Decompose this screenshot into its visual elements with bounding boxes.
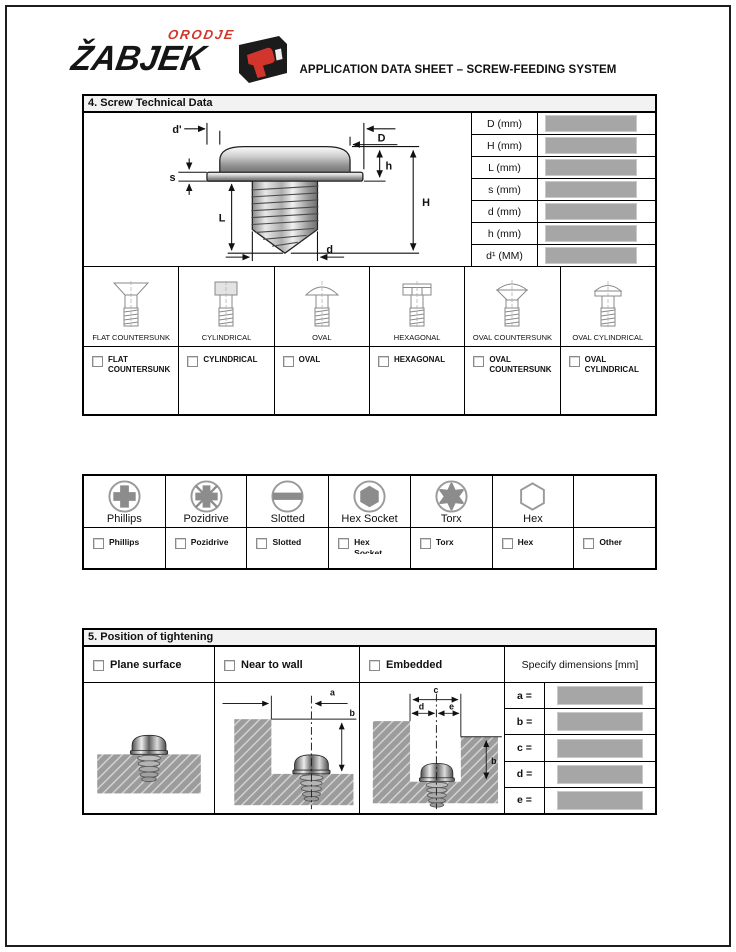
hexagonal-icon — [395, 278, 439, 330]
flat-countersunk-icon — [109, 278, 153, 330]
checkbox-hexagonal[interactable] — [378, 356, 389, 367]
checkbox-cell-hex-socket[interactable]: Hex Socket — [329, 528, 411, 568]
phillips-icon — [107, 479, 142, 514]
input-D-mm[interactable] — [545, 115, 637, 132]
checkbox-label: CYLINDRICAL — [203, 355, 257, 365]
head-type-label: OVAL CYLINDRICAL — [572, 333, 643, 342]
checkbox-cell-hexagonal[interactable]: HEXAGONAL — [370, 347, 465, 414]
dim-label-d-mm: d (mm) — [472, 201, 538, 222]
checkbox-cell-flat-countersunk[interactable]: FLAT COUNTERSUNK — [84, 347, 179, 414]
table-row: h (mm) — [472, 223, 655, 245]
checkbox-label: OVAL CYLINDRICAL — [585, 355, 651, 376]
hex-icon — [515, 479, 550, 514]
head-type-label: OVAL — [312, 333, 331, 342]
checkbox-cell-other[interactable]: Other — [574, 528, 655, 568]
dim-label-D-mm: D (mm) — [472, 113, 538, 134]
checkbox-hex-socket[interactable] — [338, 538, 349, 549]
dim-label-a: a — [330, 688, 335, 698]
head-type-hexagonal: HEXAGONAL — [370, 267, 465, 346]
drive-phillips: Phillips — [84, 476, 166, 527]
hex-socket-icon — [352, 479, 387, 514]
pozidrive-icon — [189, 479, 224, 514]
table-row: b = — [505, 709, 655, 735]
drive-hex-socket: Hex Socket — [329, 476, 411, 527]
drive-checkbox-row: Phillips Pozidrive Slotted Hex Socket To… — [84, 528, 655, 568]
logo-badge — [235, 33, 289, 87]
section-position-of-tightening: 5. Position of tightening Plane surface … — [82, 628, 657, 815]
checkbox-plane-surface[interactable] — [93, 660, 104, 671]
dim-label-e: e — [449, 701, 454, 711]
checkbox-cell-cylindrical[interactable]: CYLINDRICAL — [179, 347, 274, 414]
input-d-mm[interactable] — [545, 203, 637, 220]
dim-label-d: d — [326, 244, 333, 256]
head-type-label: HEXAGONAL — [394, 333, 441, 342]
input-d[interactable] — [557, 765, 643, 784]
checkbox-label: Phillips — [109, 537, 139, 548]
dim-b-label: b = — [505, 709, 545, 734]
checkbox-cell-slotted[interactable]: Slotted — [247, 528, 329, 568]
drive-label: Hex — [523, 514, 543, 525]
screw-dimension-diagram: d' D h s L H d — [84, 113, 472, 266]
drive-label: Phillips — [107, 514, 142, 525]
checkbox-pozidrive[interactable] — [175, 538, 186, 549]
checkbox-label: OVAL — [299, 355, 321, 365]
table-row: e = — [505, 788, 655, 813]
head-type-checkbox-row: FLAT COUNTERSUNK CYLINDRICAL OVAL HEXAGO… — [84, 347, 655, 414]
input-h-mm[interactable] — [545, 225, 637, 242]
embedded-diagram: c d e b — [360, 683, 505, 813]
drive-label: Pozidrive — [183, 514, 228, 525]
checkbox-slotted[interactable] — [256, 538, 267, 549]
dim-a-label: a = — [505, 683, 545, 708]
head-type-icons-row: FLAT COUNTERSUNK CYLINDRICAL — [84, 267, 655, 347]
dim-label-c: c — [433, 685, 438, 695]
drive-label: Slotted — [271, 514, 305, 525]
checkbox-cell-phillips[interactable]: Phillips — [84, 528, 166, 568]
option-plane-surface[interactable]: Plane surface — [84, 647, 215, 682]
checkbox-flat-countersunk[interactable] — [92, 356, 103, 367]
checkbox-label: Torx — [436, 537, 454, 548]
checkbox-cell-oval-countersunk[interactable]: OVAL COUNTERSUNK — [465, 347, 560, 414]
dim-label-h-mm: h (mm) — [472, 223, 538, 244]
dim-label-b: b — [349, 708, 354, 718]
checkbox-label: Other — [599, 537, 622, 548]
head-type-oval-countersunk: OVAL COUNTERSUNK — [465, 267, 560, 346]
input-L-mm[interactable] — [545, 159, 637, 176]
checkbox-label: Hex — [518, 537, 534, 548]
dim-label-s-mm: s (mm) — [472, 179, 538, 200]
checkbox-label: Hex Socket — [354, 537, 388, 554]
oval-cylindrical-icon — [586, 278, 630, 330]
dim-label-L-mm: L (mm) — [472, 157, 538, 178]
input-e[interactable] — [557, 791, 643, 810]
logo: ORODJE ŽABJEK — [72, 27, 290, 89]
head-type-label: CYLINDRICAL — [202, 333, 252, 342]
checkbox-label: HEXAGONAL — [394, 355, 445, 365]
table-row: s (mm) — [472, 179, 655, 201]
dimension-table: D (mm) H (mm) L (mm) s (mm) d (mm) — [472, 113, 655, 266]
page-title: APPLICATION DATA SHEET – SCREW-FEEDING S… — [288, 64, 628, 76]
plane-surface-diagram — [84, 683, 215, 813]
dim-label-h: h — [385, 160, 392, 172]
table-row: d (mm) — [472, 201, 655, 223]
checkbox-oval[interactable] — [283, 356, 294, 367]
input-d1-mm[interactable] — [545, 247, 637, 264]
head-type-cylindrical: CYLINDRICAL — [179, 267, 274, 346]
oval-countersunk-icon — [490, 278, 534, 330]
specify-dimensions-label: Specify dimensions [mm] — [505, 647, 655, 682]
table-row: d¹ (MM) — [472, 245, 655, 266]
checkbox-cell-oval[interactable]: OVAL — [275, 347, 370, 414]
dim-d-label: d = — [505, 762, 545, 787]
drive-label: Hex Socket — [341, 514, 397, 525]
drive-hex: Hex — [493, 476, 575, 527]
checkbox-cell-oval-cylindrical[interactable]: OVAL CYLINDRICAL — [561, 347, 655, 414]
option-near-to-wall[interactable]: Near to wall — [215, 647, 360, 682]
position-diagrams-row: a b — [84, 683, 655, 813]
dim-label-d-prime: d' — [172, 123, 182, 135]
drive-icons-row: Phillips Pozidrive Slotted — [84, 476, 655, 528]
oval-icon — [300, 278, 344, 330]
drive-type-table: Phillips Pozidrive Slotted — [82, 474, 657, 570]
position-options-row: Plane surface Near to wall Embedded Spec… — [84, 647, 655, 683]
dim-label-L: L — [218, 212, 225, 224]
head-type-oval-cylindrical: OVAL CYLINDRICAL — [561, 267, 655, 346]
checkbox-near-to-wall[interactable] — [224, 660, 235, 671]
option-label: Plane surface — [110, 659, 182, 671]
dim-c-label: c = — [505, 735, 545, 760]
near-to-wall-diagram: a b — [215, 683, 360, 813]
checkbox-cell-torx[interactable]: Torx — [411, 528, 493, 568]
logo-wordmark: ŽABJEK — [68, 39, 208, 79]
option-label: Embedded — [386, 659, 442, 671]
checkbox-cell-pozidrive[interactable]: Pozidrive — [166, 528, 248, 568]
dim-e-label: e = — [505, 788, 545, 813]
dim-label-b2: b — [491, 756, 496, 766]
cylindrical-icon — [204, 278, 248, 330]
drive-pozidrive: Pozidrive — [166, 476, 248, 527]
checkbox-cell-hex[interactable]: Hex — [493, 528, 575, 568]
dim-label-s: s — [169, 172, 175, 184]
drive-empty-cell — [574, 476, 655, 527]
torx-icon — [434, 479, 469, 514]
application-data-sheet-page: ORODJE ŽABJEK APPLICATION DATA SHEET – S… — [0, 0, 736, 952]
section4-header: 4. Screw Technical Data — [84, 96, 655, 113]
input-c[interactable] — [557, 739, 643, 758]
head-type-label: OVAL COUNTERSUNK — [473, 333, 552, 342]
input-H-mm[interactable] — [545, 137, 637, 154]
table-row: L (mm) — [472, 157, 655, 179]
checkbox-cylindrical[interactable] — [187, 356, 198, 367]
dim-label-d: d — [418, 701, 423, 711]
drive-torx: Torx — [411, 476, 493, 527]
checkbox-label: Pozidrive — [191, 537, 229, 548]
option-label: Near to wall — [241, 659, 303, 671]
head-type-flat-countersunk: FLAT COUNTERSUNK — [84, 267, 179, 346]
checkbox-oval-cylindrical[interactable] — [569, 356, 580, 367]
input-b[interactable] — [557, 712, 643, 731]
head-type-oval: OVAL — [275, 267, 370, 346]
dim-label-H: H — [422, 196, 430, 208]
drive-label: Torx — [441, 514, 462, 525]
checkbox-hex[interactable] — [502, 538, 513, 549]
slotted-icon — [270, 479, 305, 514]
table-row: c = — [505, 735, 655, 761]
section-screw-technical-data: 4. Screw Technical Data — [82, 94, 657, 416]
table-row: d = — [505, 762, 655, 788]
checkbox-embedded[interactable] — [369, 660, 380, 671]
checkbox-label: OVAL COUNTERSUNK — [489, 355, 555, 376]
head-type-label: FLAT COUNTERSUNK — [92, 333, 170, 342]
dim-label-D: D — [377, 132, 385, 144]
table-row: a = — [505, 683, 655, 709]
table-row: H (mm) — [472, 135, 655, 157]
input-s-mm[interactable] — [545, 181, 637, 198]
checkbox-torx[interactable] — [420, 538, 431, 549]
checkbox-label: FLAT COUNTERSUNK — [108, 355, 174, 376]
dim-label-d1-mm: d¹ (MM) — [472, 245, 538, 266]
specify-dimensions-table: a = b = c = d = e = — [505, 683, 655, 813]
option-embedded[interactable]: Embedded — [360, 647, 505, 682]
section5-header: 5. Position of tightening — [84, 630, 655, 647]
drive-slotted: Slotted — [247, 476, 329, 527]
checkbox-phillips[interactable] — [93, 538, 104, 549]
dim-label-H-mm: H (mm) — [472, 135, 538, 156]
checkbox-oval-countersunk[interactable] — [473, 356, 484, 367]
table-row: D (mm) — [472, 113, 655, 135]
checkbox-other[interactable] — [583, 538, 594, 549]
input-a[interactable] — [557, 686, 643, 705]
checkbox-label: Slotted — [272, 537, 301, 548]
